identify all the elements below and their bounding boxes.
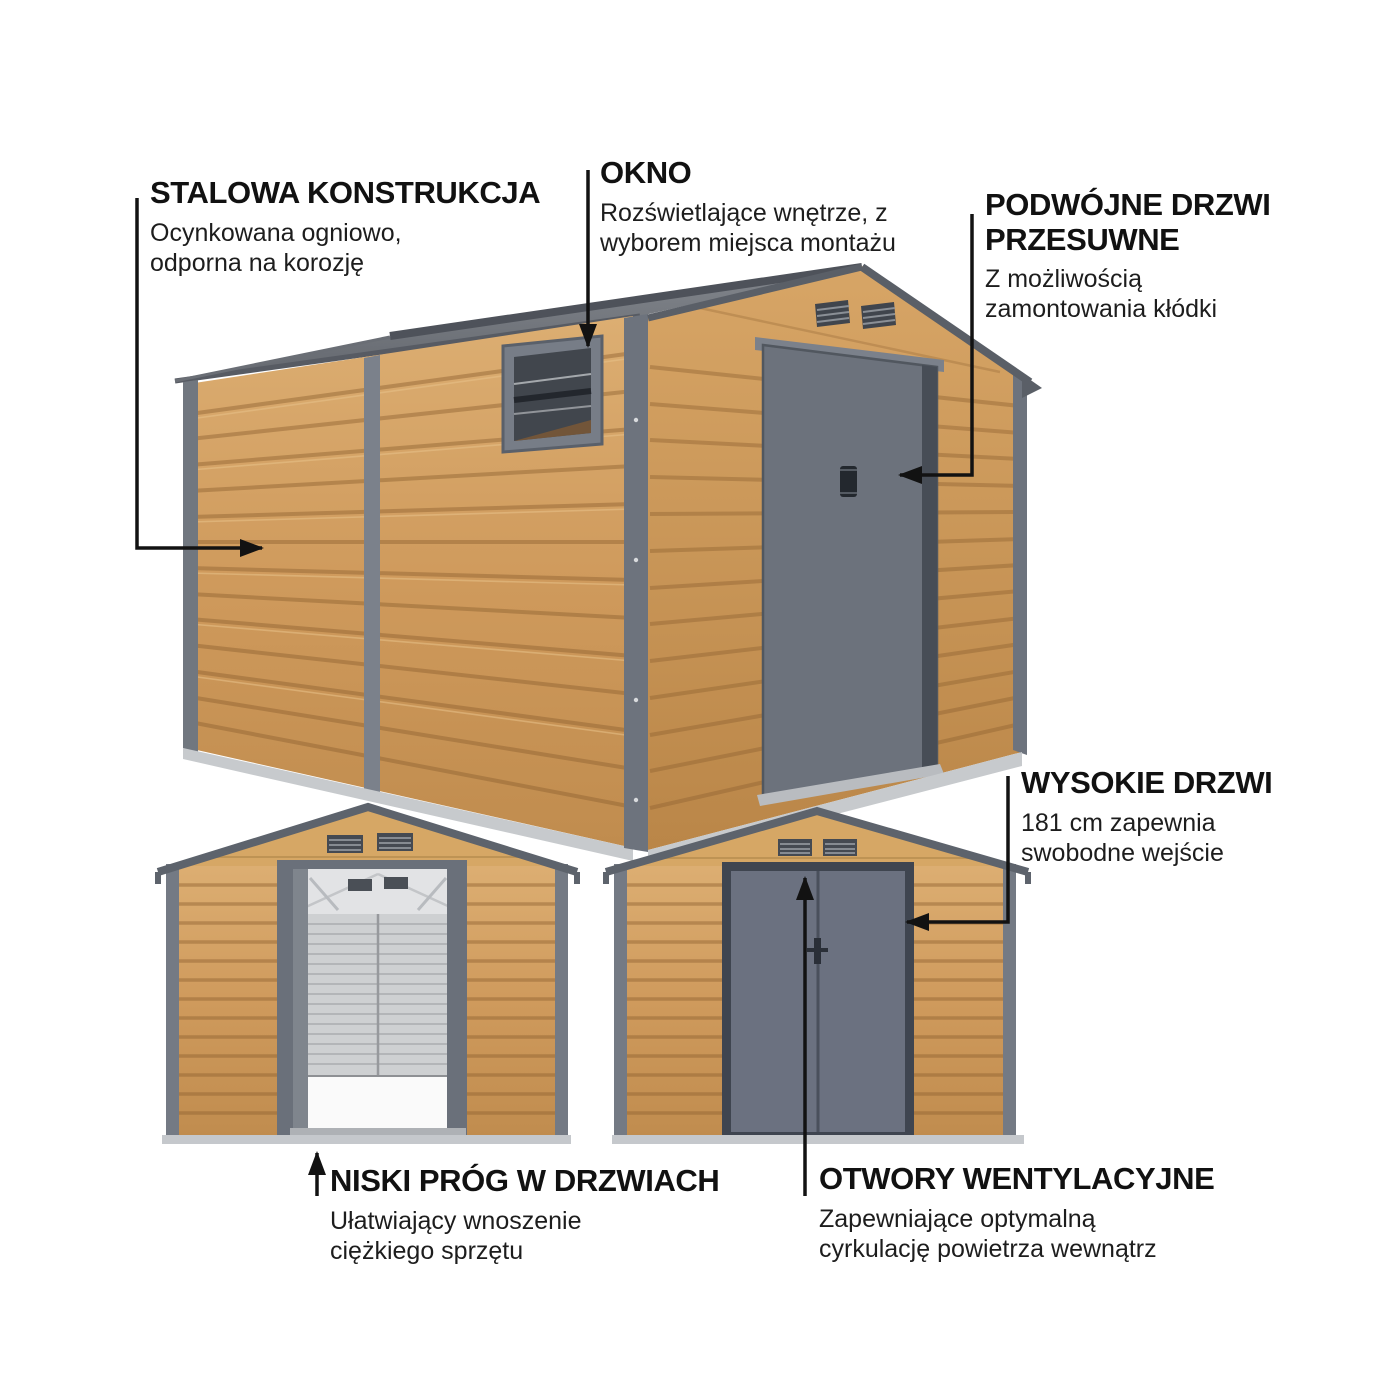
- annotation-body-line: Rozświetlające wnętrze, z: [600, 198, 896, 228]
- gable-vent-right-icon: [823, 839, 857, 856]
- infographic-canvas: STALOWA KONSTRUKCJA Ocynkowana ogniowo, …: [0, 0, 1400, 1400]
- door-panel: [763, 345, 937, 801]
- annotation-heading: STALOWA KONSTRUKCJA: [150, 176, 540, 211]
- annotation-okno: OKNO Rozświetlające wnętrze, z wyborem m…: [600, 156, 896, 258]
- annotation-niski-prog-w-drzwiach: NISKI PRÓG W DRZWIACH Ułatwiający wnosze…: [330, 1164, 719, 1266]
- side-wall-right: [907, 866, 1014, 1138]
- annotation-otwory-wentylacyjne: OTWORY WENTYLACYJNE Zapewniające optymal…: [819, 1162, 1214, 1264]
- annotation-body-line: cyrkulację powietrza wewnątrz: [819, 1234, 1214, 1264]
- gable-vent-left-icon: [815, 300, 850, 327]
- door-header: [277, 860, 467, 869]
- side-wall-right: [467, 866, 567, 1138]
- interior-vent-icon: [348, 879, 372, 891]
- annotation-body-line: swobodne wejście: [1021, 838, 1272, 868]
- right-corner-trim: [1013, 370, 1027, 755]
- annotation-stalowa-konstrukcja: STALOWA KONSTRUKCJA Ocynkowana ogniowo, …: [150, 176, 540, 278]
- annotation-body-line: Zapewniające optymalną: [819, 1204, 1214, 1234]
- annotation-heading: NISKI PRÓG W DRZWIACH: [330, 1164, 719, 1199]
- base-rail: [612, 1135, 1024, 1144]
- annotation-body-line: Ułatwiający wnoszenie: [330, 1206, 719, 1236]
- annotation-heading: PODWÓJNE DRZWI: [985, 188, 1270, 223]
- corner-trim: [614, 864, 627, 1140]
- isometric-shed: [175, 266, 1042, 863]
- threshold: [290, 1128, 466, 1136]
- side-wall-left: [170, 866, 277, 1138]
- door-handle: [807, 948, 828, 952]
- open-doorway-interior: [293, 866, 463, 1136]
- front-corner-trim: [624, 314, 648, 852]
- annotation-wysokie-drzwi: WYSOKIE DRZWI 181 cm zapewnia swobodne w…: [1021, 766, 1272, 868]
- front-shed-closed: [606, 811, 1028, 1144]
- annotation-heading: WYSOKIE DRZWI: [1021, 766, 1272, 801]
- annotation-body-line: Ocynkowana ogniowo,: [150, 218, 540, 248]
- base-rail: [162, 1135, 571, 1144]
- annotation-body-line: 181 cm zapewnia: [1021, 808, 1272, 838]
- annotation-body-line: zamontowania kłódki: [985, 294, 1270, 324]
- interior-vent-icon: [384, 877, 408, 889]
- annotation-podwojne-drzwi-przesuwne: PODWÓJNE DRZWI PRZESUWNE Z możliwością z…: [985, 188, 1270, 324]
- door-jamb-left: [277, 862, 293, 1138]
- annotation-body-line: ciężkiego sprzętu: [330, 1236, 719, 1266]
- annotation-body-line: Z możliwością: [985, 264, 1270, 294]
- double-doors-closed: [722, 862, 914, 1138]
- left-corner-trim: [183, 380, 198, 753]
- annotation-heading: PRZESUWNE: [985, 223, 1270, 258]
- interior-floor: [308, 1076, 448, 1132]
- door-edge-shadow: [922, 365, 937, 774]
- annotation-body-line: odporna na korozję: [150, 248, 540, 278]
- corner-trim: [166, 864, 179, 1140]
- gable-vent-right-icon: [861, 302, 896, 329]
- gable-vent-left-icon: [778, 839, 812, 856]
- left-wall-seam-trim: [364, 355, 380, 792]
- annotation-heading: OTWORY WENTYLACYJNE: [819, 1162, 1214, 1197]
- window: [503, 336, 602, 452]
- annotation-body-line: wyborem miejsca montażu: [600, 228, 896, 258]
- side-wall-left: [618, 866, 723, 1138]
- eave-overhang-tip: [1022, 374, 1042, 398]
- annotation-heading: OKNO: [600, 156, 896, 191]
- gable-vent-left-icon: [327, 835, 363, 853]
- front-shed-open: [158, 807, 577, 1144]
- corner-trim: [555, 864, 568, 1140]
- door-jamb-right: [447, 862, 467, 1138]
- sliding-door: [755, 337, 944, 806]
- pocket-door-left: [293, 866, 308, 1136]
- gable-vent-right-icon: [377, 833, 413, 851]
